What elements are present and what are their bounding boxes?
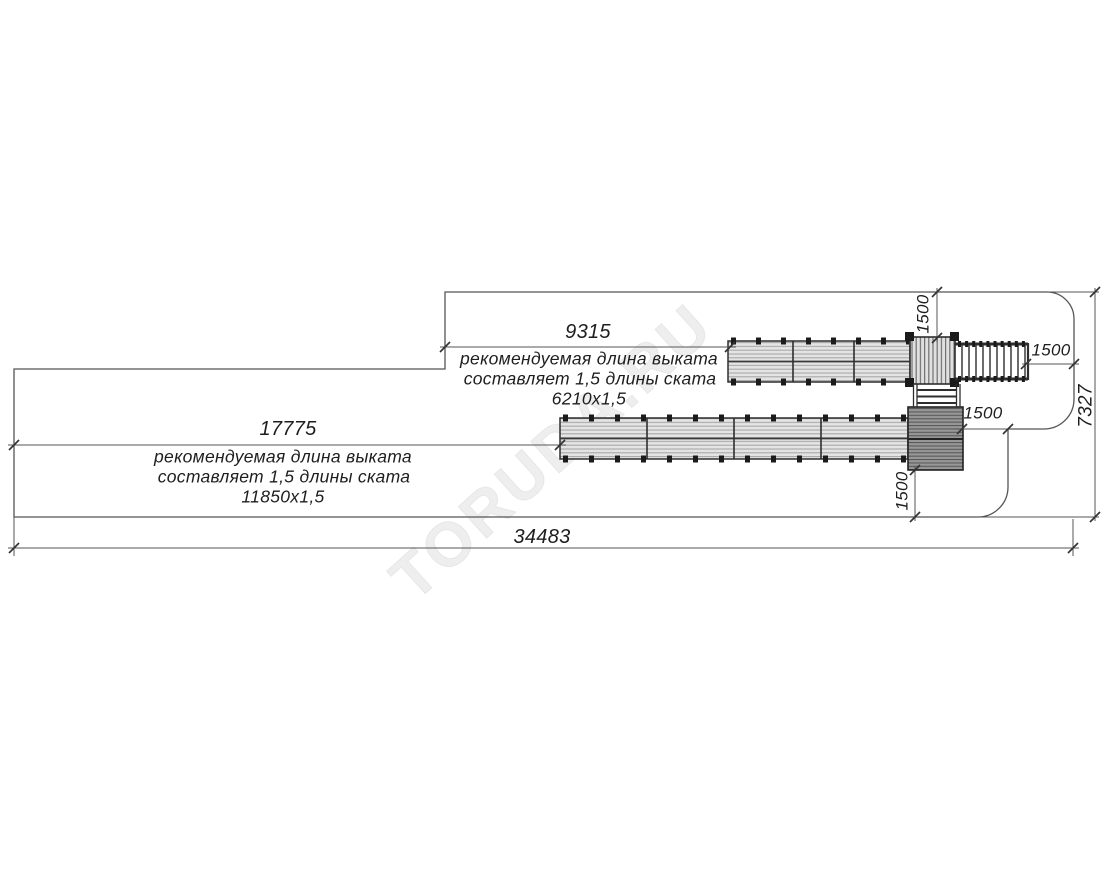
dim-value-7327: 7327: [1077, 384, 1096, 427]
lower-note-line1: рекомендуемая длина выката: [154, 448, 412, 466]
dim-value-1500-top: 1500: [915, 294, 932, 333]
dim-value-1500-bottom: 1500: [894, 471, 911, 510]
corner-post: [905, 378, 914, 387]
hill-mound: [908, 407, 963, 470]
upper-slide-plan: [728, 341, 910, 382]
dim-value-1500-middle: 1500: [963, 405, 1002, 422]
dim-value-9315: 9315: [565, 322, 611, 342]
upper-note-line1: рекомендуемая длина выката: [460, 350, 718, 368]
dim-value-1500-right: 1500: [1031, 342, 1070, 359]
plan-drawing: [0, 0, 1110, 879]
tower-platform: [905, 332, 959, 387]
lower-slide-plan: [560, 418, 908, 459]
access-ladder: [955, 343, 1028, 380]
corner-post: [950, 332, 959, 341]
stairs: [914, 384, 961, 407]
drawing-canvas: TORUDA.RU: [0, 0, 1110, 879]
dim-value-17775: 17775: [259, 419, 316, 439]
upper-note-line2: составляет 1,5 длины ската: [464, 370, 717, 388]
dim-value-34483: 34483: [513, 527, 570, 547]
lower-note-line2: составляет 1,5 длины ската: [158, 468, 411, 486]
upper-note-line3: 6210x1,5: [552, 390, 626, 408]
lower-note-line3: 11850x1,5: [241, 488, 324, 506]
